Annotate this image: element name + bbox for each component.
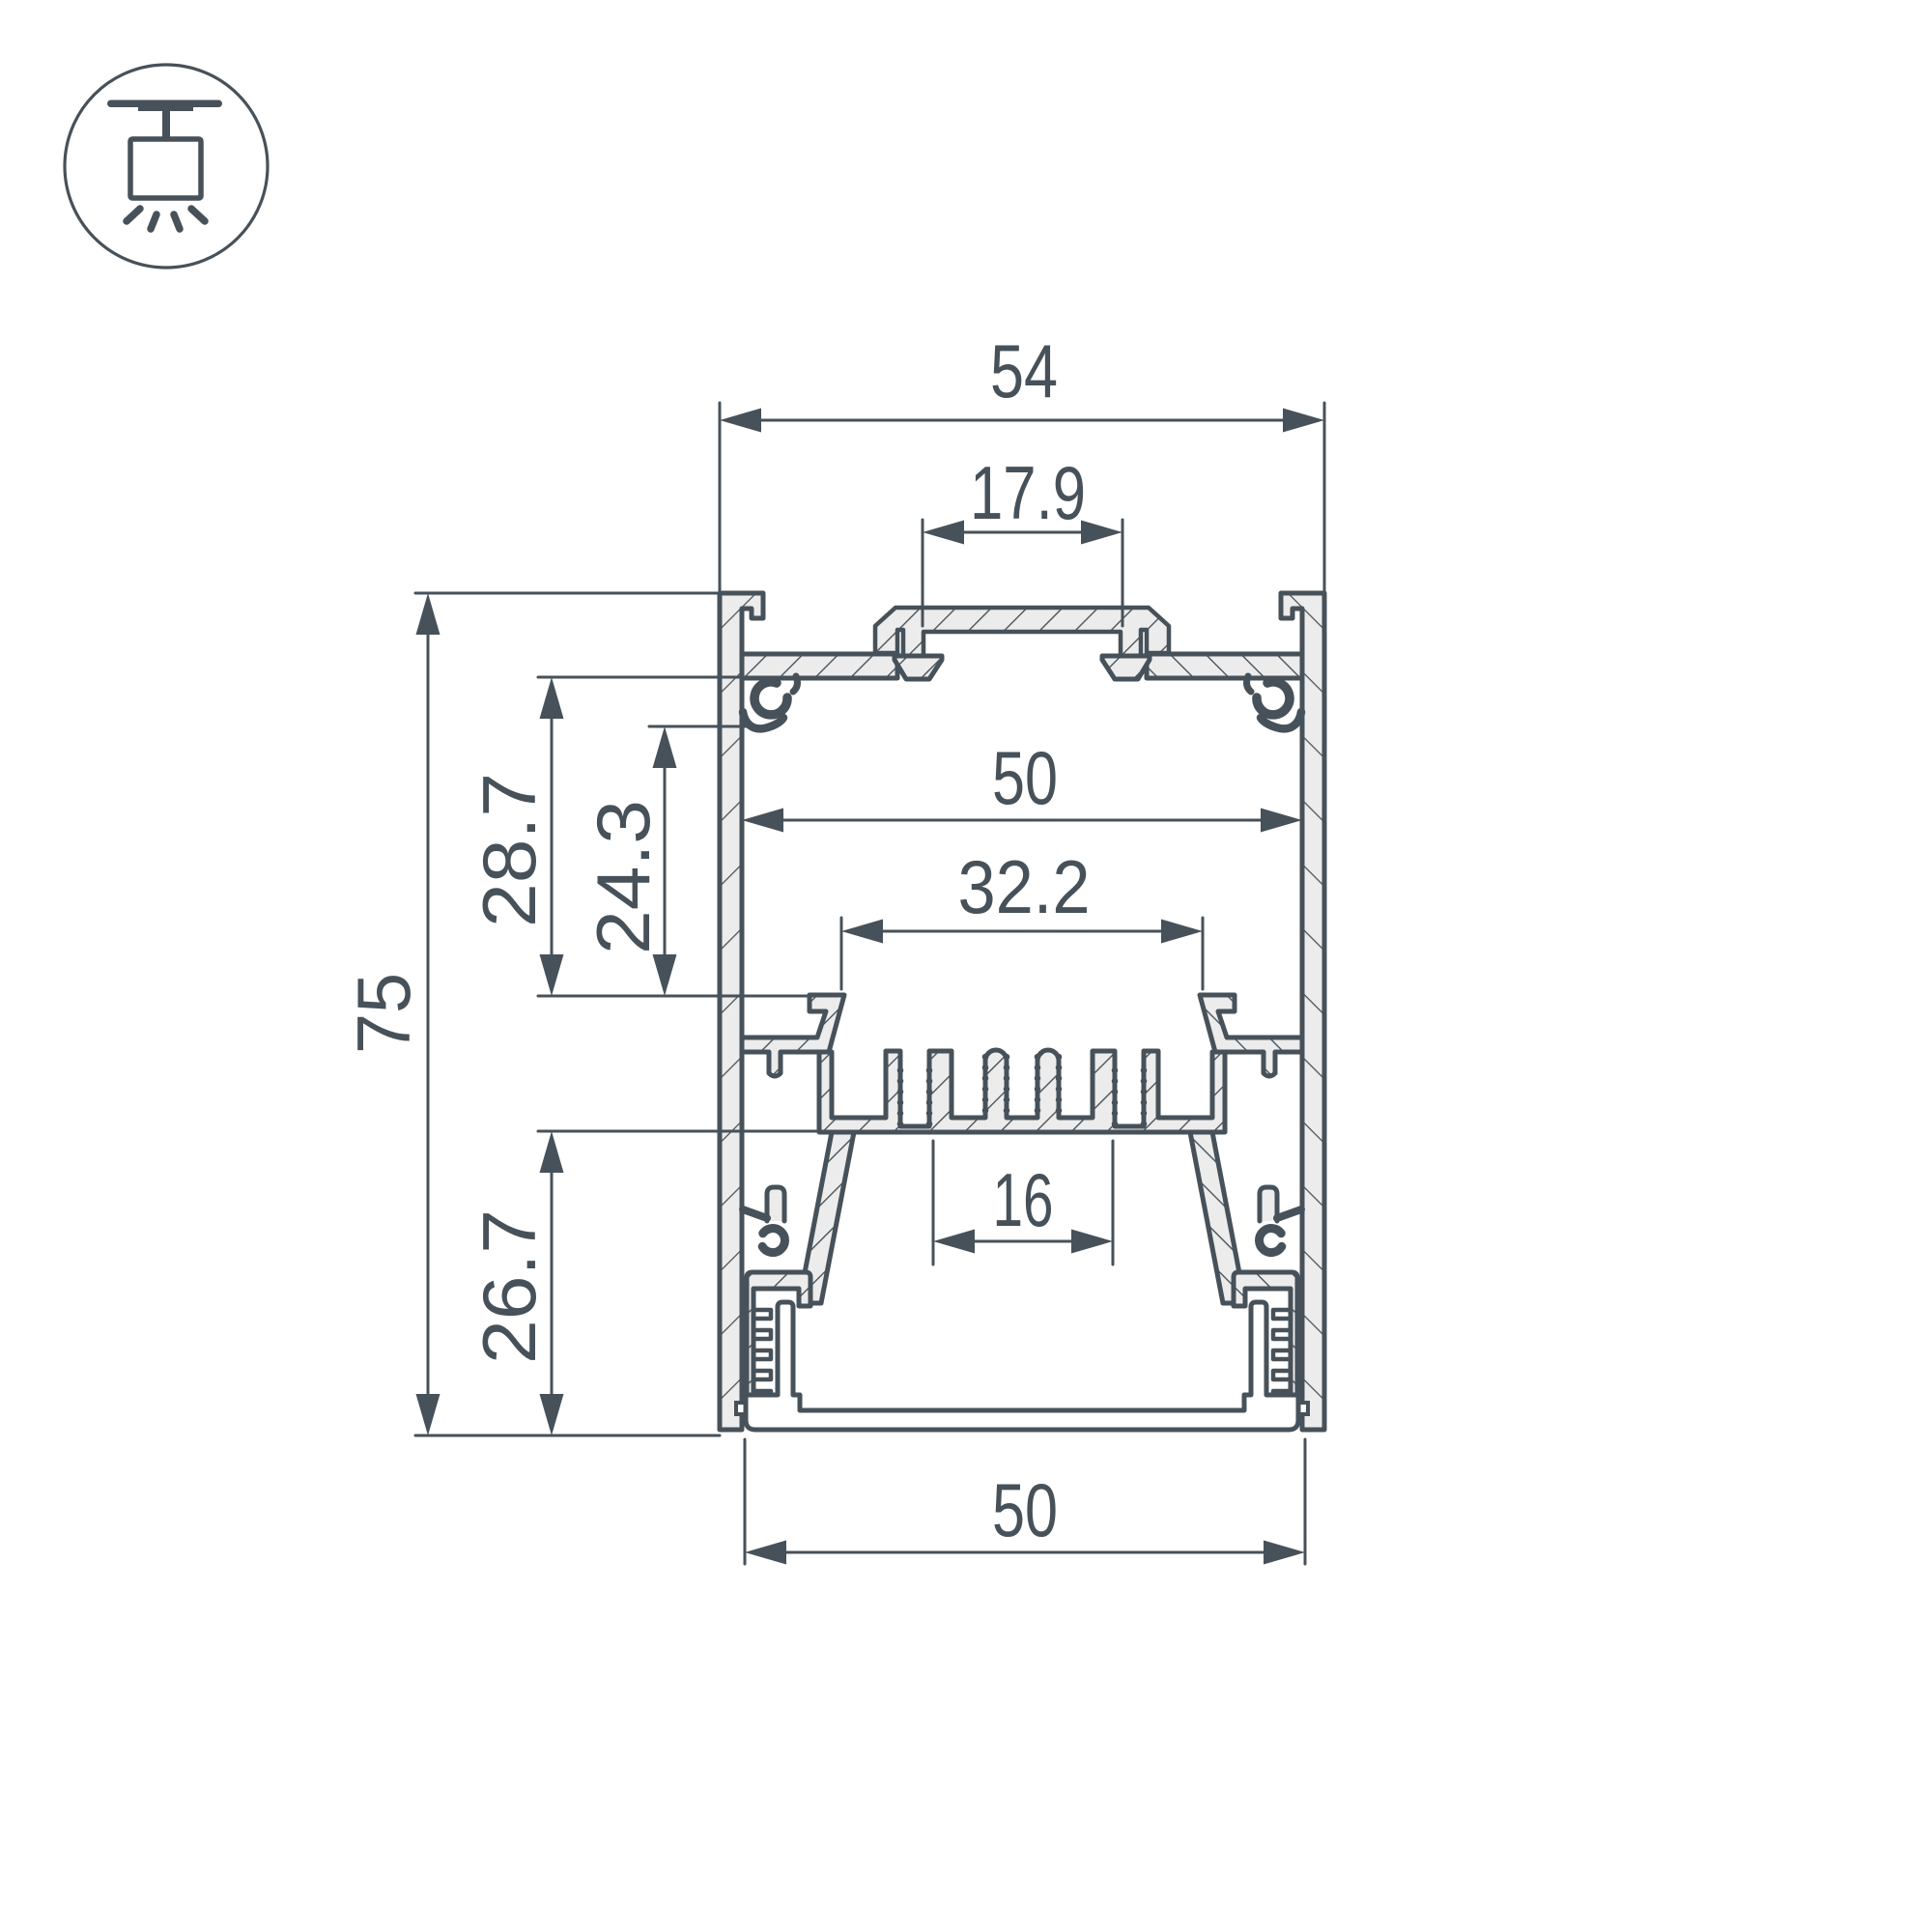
svg-text:54: 54	[990, 328, 1058, 413]
svg-text:26.7: 26.7	[467, 1209, 552, 1364]
svg-text:24.3: 24.3	[581, 800, 666, 954]
svg-text:28.7: 28.7	[467, 773, 552, 927]
svg-text:75: 75	[341, 973, 426, 1054]
svg-text:50: 50	[992, 1467, 1058, 1552]
svg-text:16: 16	[993, 1157, 1054, 1242]
svg-text:32.2: 32.2	[958, 844, 1091, 929]
svg-text:17.9: 17.9	[970, 450, 1086, 535]
svg-text:50: 50	[992, 735, 1058, 820]
